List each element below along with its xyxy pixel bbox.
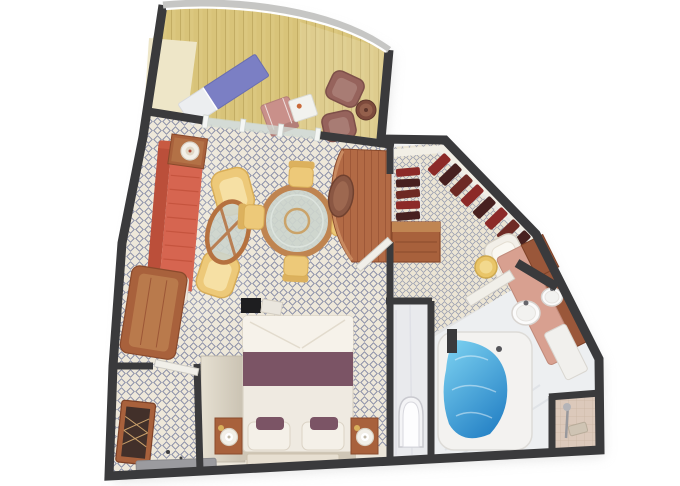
floorplan-page bbox=[0, 0, 680, 486]
tub-faucet bbox=[496, 346, 502, 352]
sink-left-basin bbox=[517, 305, 536, 321]
bed bbox=[240, 316, 356, 460]
balcony-side-table bbox=[356, 100, 376, 120]
nightstand-right bbox=[351, 418, 378, 454]
tv bbox=[241, 298, 261, 313]
dining-table bbox=[263, 187, 331, 255]
tv-stand-panel bbox=[261, 299, 283, 315]
shower-stall bbox=[555, 395, 598, 452]
door-hardware-2 bbox=[180, 457, 183, 460]
entry-right-wall bbox=[197, 364, 200, 471]
dining-chair-south bbox=[282, 255, 309, 282]
nightstand-left bbox=[215, 418, 242, 454]
dresser bbox=[392, 222, 440, 262]
shower-floor bbox=[555, 395, 598, 452]
bed-runner bbox=[243, 352, 353, 386]
dining-chair-west bbox=[237, 203, 264, 230]
accent-pillow-right bbox=[310, 417, 338, 430]
sink-left-faucet bbox=[524, 301, 529, 306]
toilet-room-fixtures bbox=[399, 397, 423, 447]
sink-right-basin bbox=[545, 291, 559, 303]
door-hardware bbox=[166, 450, 170, 454]
toilet-bowl bbox=[403, 402, 419, 447]
table-lamp bbox=[181, 142, 199, 160]
dining-chair-north bbox=[287, 160, 314, 187]
shower-top-wall bbox=[549, 393, 600, 397]
garments-left bbox=[396, 167, 421, 221]
tub-corner-wall bbox=[447, 329, 457, 353]
framed-mirror bbox=[116, 400, 156, 465]
floorplan-render bbox=[0, 0, 680, 486]
vanity-stool bbox=[475, 256, 497, 278]
accent-pillow-left bbox=[256, 417, 284, 430]
shower-head-icon bbox=[563, 403, 571, 411]
